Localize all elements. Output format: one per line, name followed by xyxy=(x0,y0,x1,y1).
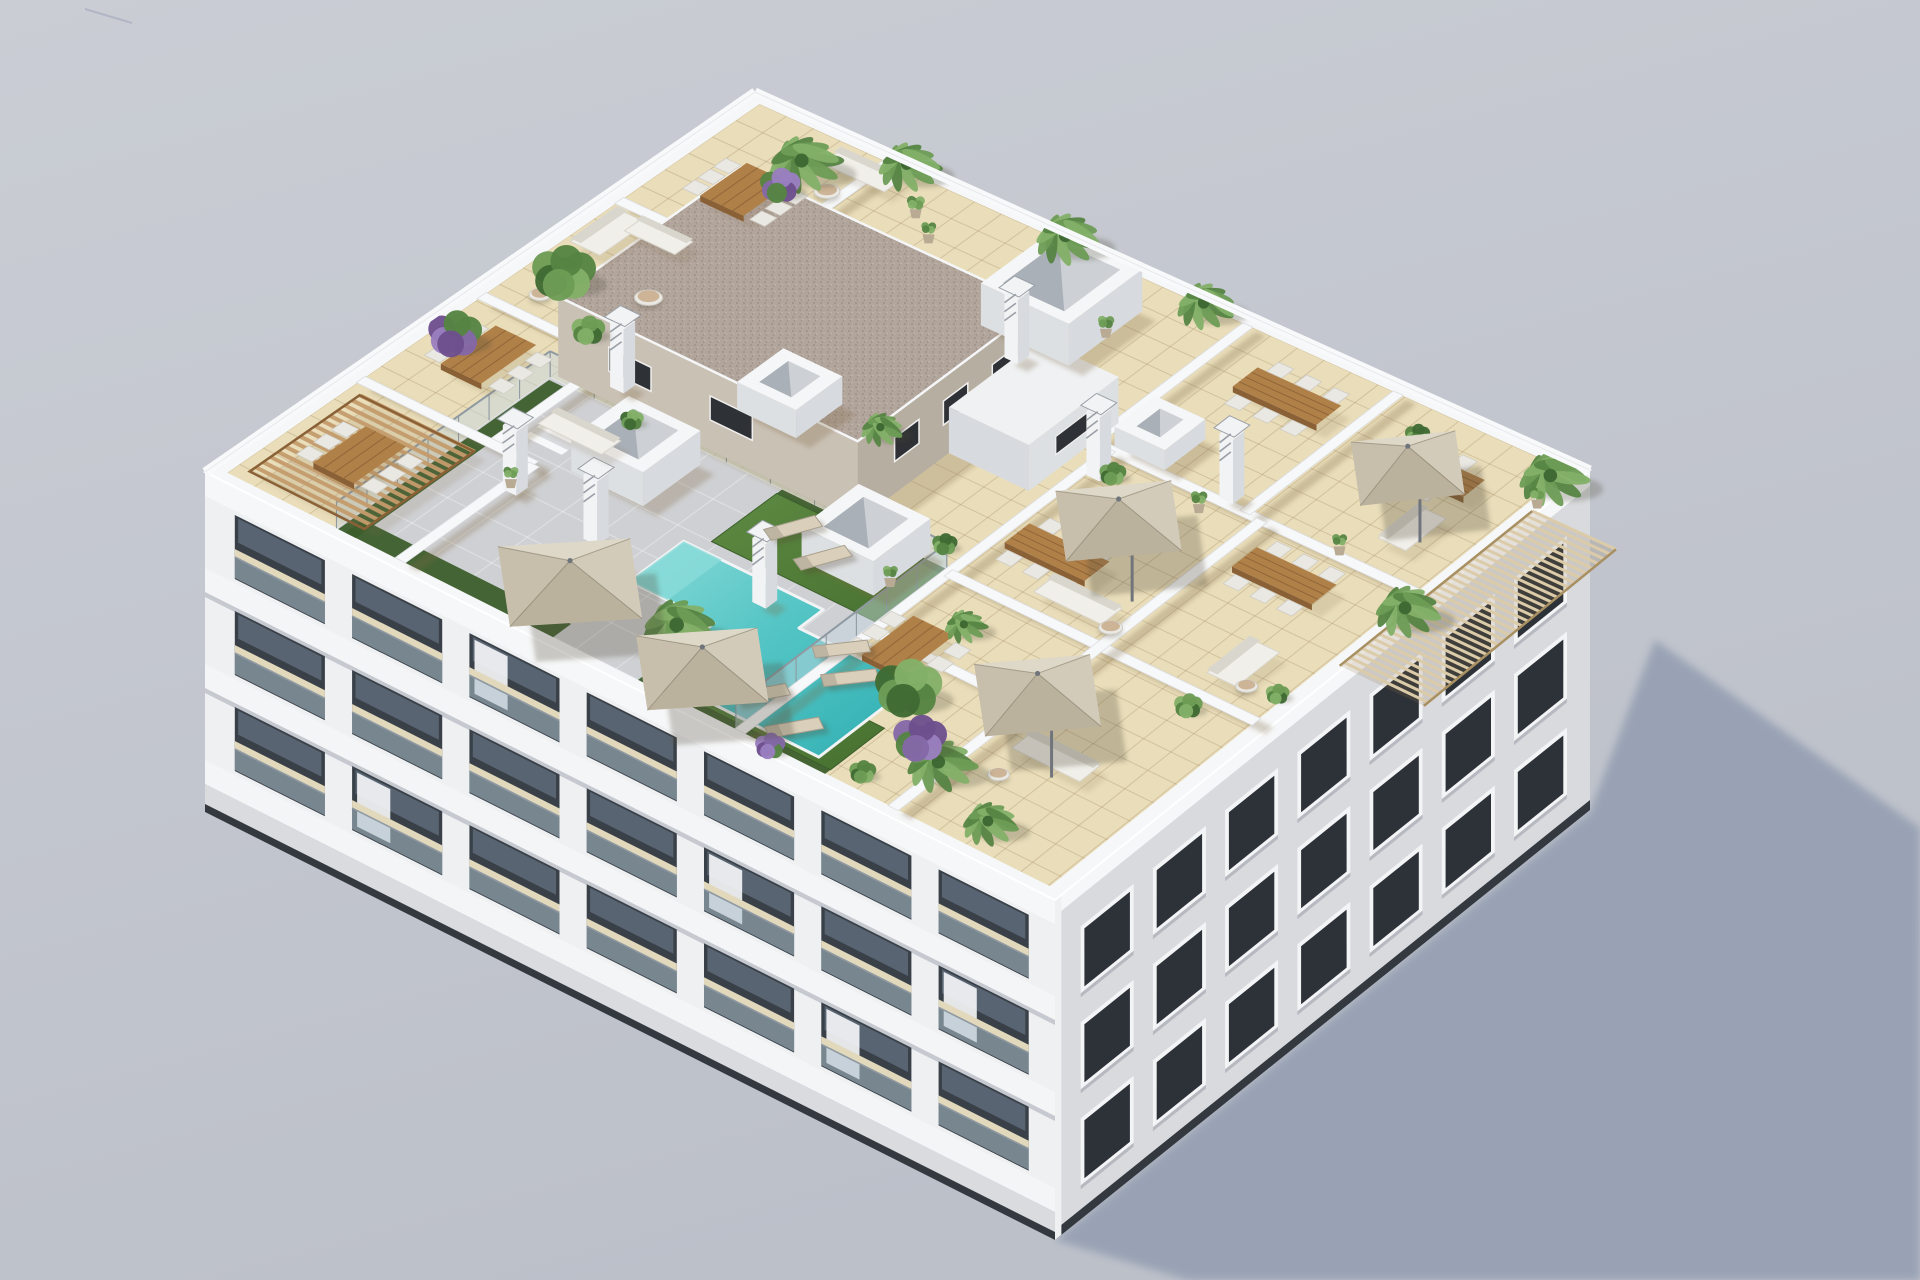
umbrella-finial xyxy=(1035,671,1040,676)
umbrella-finial xyxy=(567,558,572,563)
round-table xyxy=(635,290,663,309)
round-table xyxy=(1236,680,1258,696)
umbrella-finial xyxy=(700,644,705,649)
corner-trim xyxy=(1055,895,1061,1240)
umbrella-finial xyxy=(1116,496,1121,501)
aerial-building-render xyxy=(0,0,1920,1280)
round-table xyxy=(1099,621,1123,638)
umbrella-finial xyxy=(1405,444,1410,449)
round-table xyxy=(987,768,1009,784)
render-viewport xyxy=(0,0,1920,1280)
